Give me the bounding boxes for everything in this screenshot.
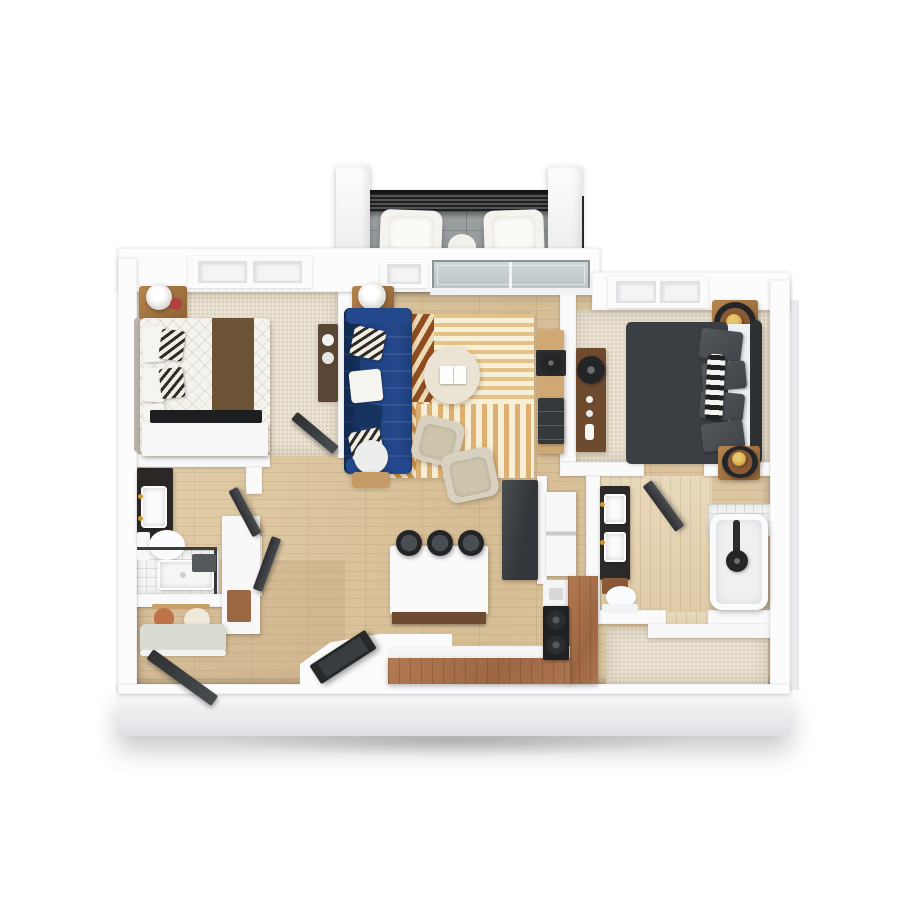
living-console-drawers (538, 398, 564, 444)
exterior-wall-face-bottom (118, 692, 790, 736)
kitchen-island (390, 546, 488, 614)
living-coffee-table-book (440, 366, 466, 384)
living-record-disc (541, 353, 561, 373)
bathroom1-faucet-2 (138, 516, 143, 521)
bedroom2-dresser-bottle (585, 424, 594, 440)
kitchen-fridge (502, 480, 538, 580)
bedroom2-striped-blanket-roll (704, 354, 725, 421)
entry-wardrobe-crate (227, 590, 251, 622)
kitchen-bar-stool-3 (458, 530, 484, 556)
bedroom1-shelf-vase-2 (322, 352, 334, 364)
bathroom1-shower-fixture (192, 554, 216, 572)
balcony-door-sill (430, 288, 592, 295)
bedroom1-pillow-chevron-1 (158, 328, 186, 361)
balcony-pillar-left (336, 166, 370, 260)
bathroom1-toilet-bowl (149, 530, 185, 560)
kitchen-bar-stool-2 (427, 530, 453, 556)
bedroom2-dresser-item-2 (586, 410, 593, 417)
living-accent-chair-2 (439, 445, 500, 505)
wall-bedroom2-bottom-left (560, 462, 644, 476)
kitchen-sink (549, 588, 563, 600)
living-sofa-pillow-chevron-1 (349, 325, 387, 361)
bedroom1-table-lamp (146, 284, 172, 310)
kitchen-counter-bottom (388, 658, 570, 684)
bathroom1-shower-glass-top (137, 547, 217, 550)
bedroom1-tv (150, 410, 262, 423)
living-wood-stool (352, 472, 390, 488)
bathroom2-faucet-1 (600, 502, 605, 507)
kitchen-island-drawer-base (392, 612, 486, 624)
kitchen-stove (543, 606, 569, 660)
bedroom1-window (188, 256, 312, 288)
balcony-pillar-right (548, 166, 582, 260)
wall-bathroom2-closet-right (708, 610, 772, 624)
closet-shelf-band (648, 624, 770, 638)
bedroom2-lamp-bottom (732, 452, 746, 466)
apartment-3d-floor-plan (0, 0, 900, 900)
kitchen-counter-vertical (568, 576, 598, 684)
bathroom2-toilet-tank (602, 604, 638, 613)
living-table-lamp (358, 282, 386, 310)
exterior-wall-bottom (118, 684, 790, 694)
kitchen-linen-shelves (546, 492, 576, 576)
wall-bathroom1-right-upper (246, 467, 262, 494)
kitchen-bar-stool-1 (396, 530, 422, 556)
bedroom2-speaker (577, 356, 605, 384)
living-sofa-pillow-cream (348, 368, 383, 403)
living-sofa-pillow-navy (353, 403, 383, 430)
bathroom2-sink-1 (604, 494, 626, 524)
bathroom1-shower-drain (180, 572, 186, 578)
bedroom1-flower-pot (170, 298, 182, 310)
bedroom2-dresser-item-1 (586, 396, 593, 403)
living-room-window (380, 260, 428, 288)
bedroom1-dresser (142, 422, 268, 456)
bathroom2-sink-2 (604, 532, 626, 562)
bathroom2-faucet-2 (600, 540, 605, 545)
bathroom1-sink (141, 486, 167, 528)
living-sofa-arm-top (346, 308, 410, 324)
bedroom2-window (608, 276, 708, 308)
bathroom2-shower-head (726, 550, 748, 572)
exterior-wall-right (770, 280, 790, 690)
bathroom1-faucet-1 (138, 494, 143, 499)
bedroom1-shelf-vase-1 (322, 334, 334, 346)
living-drum-table (354, 440, 388, 474)
bedroom1-pillow-chevron-2 (158, 367, 185, 399)
balcony-sliding-door (432, 260, 590, 290)
bedroom2-headboard (750, 320, 762, 464)
